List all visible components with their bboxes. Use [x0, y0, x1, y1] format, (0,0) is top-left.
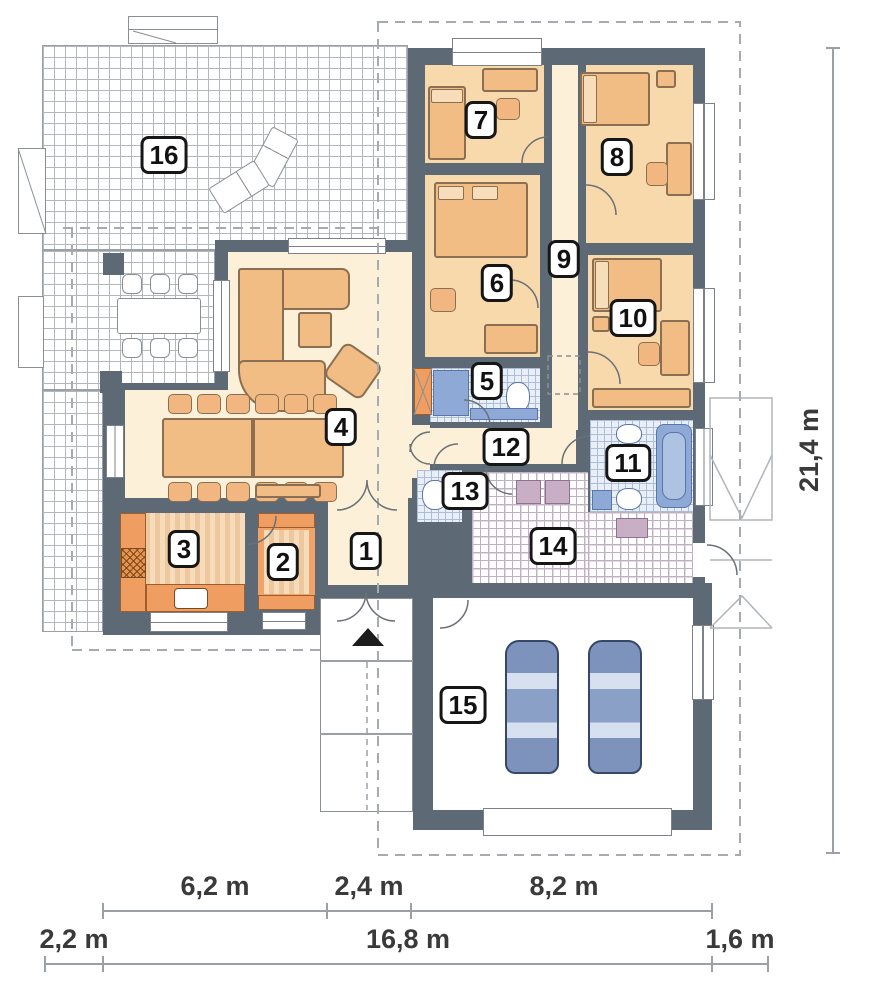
door-opening [693, 543, 707, 577]
desk [666, 142, 692, 196]
dryer [545, 480, 570, 504]
dim-6-2: 6,2 m [180, 871, 249, 901]
shower [433, 370, 469, 416]
garden-bench-divider [128, 29, 218, 30]
terrace-chair [150, 338, 170, 358]
room-9-hall-floor [552, 65, 578, 175]
room-label-15: 15 [440, 686, 487, 724]
window [288, 238, 386, 254]
dining-chair [226, 394, 250, 414]
desk [660, 320, 690, 376]
room-label-11: 11 [605, 444, 651, 482]
dining-chair [255, 394, 279, 414]
room-label-7: 7 [465, 101, 497, 139]
washbasin-counter [470, 408, 538, 420]
side-planter [18, 296, 44, 368]
room-9-hall-floor [552, 175, 578, 430]
porch-step [320, 733, 413, 735]
floor-plan: 6,2 m 2,4 m 8,2 m 2,2 m 16,8 m 1,6 m 21,… [0, 0, 874, 1000]
room-label-2: 2 [267, 543, 299, 581]
window [693, 103, 715, 200]
room-label-14: 14 [530, 527, 577, 565]
nightstand [592, 316, 610, 332]
coffee-table [298, 312, 332, 348]
window [693, 288, 715, 383]
terrace-chair [178, 338, 198, 358]
terrace-chair [122, 338, 142, 358]
nightstand [656, 70, 676, 88]
terrace-chair [122, 274, 142, 294]
dim-21-4: 21,4 m [794, 408, 824, 492]
window [262, 612, 306, 630]
garage-door [483, 808, 672, 836]
garden-bench [128, 16, 218, 44]
terrace-deck [42, 45, 408, 250]
closet [414, 368, 432, 415]
dining-chair [168, 482, 192, 502]
washbasin [616, 424, 642, 444]
window [150, 612, 228, 632]
room-label-5: 5 [471, 362, 503, 400]
bed-pillow [595, 261, 609, 309]
room-label-16: 16 [141, 136, 188, 174]
entrance-porch [320, 598, 413, 812]
window [106, 425, 124, 478]
room-label-6: 6 [481, 264, 513, 302]
terrace-door-window [213, 280, 230, 372]
dining-chair [226, 482, 250, 502]
terrace-table [117, 298, 201, 334]
dim-16-8: 16,8 m [366, 924, 450, 954]
dining-chair [197, 482, 221, 502]
terrace-chair [178, 274, 198, 294]
dining-chair [168, 394, 192, 414]
dining-chair [284, 394, 308, 414]
kitchen-sink [174, 588, 208, 609]
dining-chair [197, 394, 221, 414]
window [452, 38, 542, 66]
bathtub-inner [662, 432, 686, 500]
stove [121, 548, 146, 578]
desk-chair [646, 162, 668, 186]
washing-machine [516, 480, 541, 504]
car [505, 640, 559, 774]
window [692, 625, 714, 700]
dim-8-2: 8,2 m [529, 871, 598, 901]
desk-chair [638, 342, 660, 366]
terrace-chair [150, 274, 170, 294]
room-label-4: 4 [325, 408, 357, 446]
room-label-1: 1 [350, 532, 382, 570]
car [588, 640, 642, 774]
room-label-8: 8 [601, 138, 633, 176]
window [695, 428, 713, 506]
desk-chair [496, 98, 520, 120]
dim-2-2: 2,2 m [39, 924, 108, 954]
terrace-deck [42, 390, 103, 632]
pantry-shelf [258, 513, 315, 528]
sofa [238, 268, 284, 372]
room-label-12: 12 [483, 428, 530, 466]
room-label-3: 3 [168, 530, 200, 568]
utility-table [616, 518, 648, 538]
side-canopy [710, 398, 772, 628]
bed-pillow [472, 186, 498, 200]
bed-pillow [583, 75, 597, 123]
room-label-9: 9 [548, 240, 580, 278]
desk [482, 68, 538, 92]
wardrobe [484, 324, 538, 354]
bed-pillow [438, 186, 464, 200]
toilet [616, 488, 642, 510]
terrace-pillar [103, 253, 124, 275]
porch-step [320, 660, 413, 662]
room-label-13: 13 [442, 472, 489, 510]
room-label-10: 10 [610, 299, 657, 337]
sideboard [255, 484, 321, 498]
pantry-shelf [258, 595, 315, 610]
dim-2-4: 2,4 m [334, 871, 403, 901]
dining-table [162, 418, 344, 478]
wardrobe [592, 388, 691, 408]
side-planter [18, 148, 46, 234]
bath-cabinet [592, 490, 612, 510]
bed-pillow [431, 89, 463, 103]
armchair [430, 288, 456, 312]
dim-1-6: 1,6 m [705, 924, 774, 954]
